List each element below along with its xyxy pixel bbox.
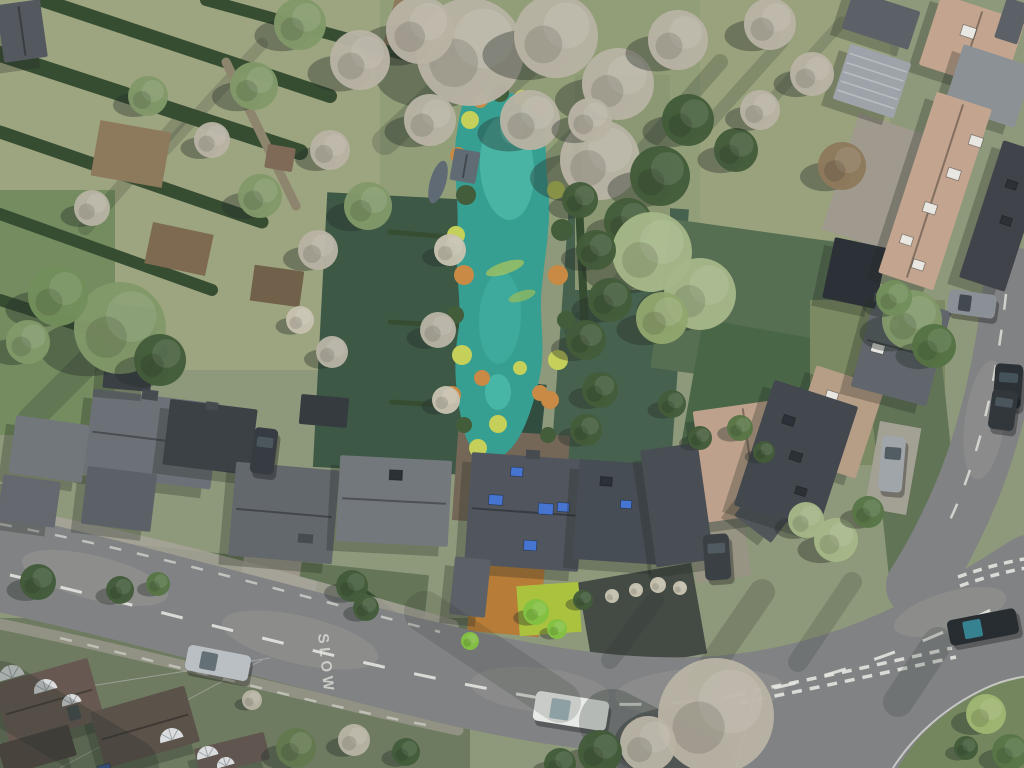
screenshot: SLOW (0, 0, 1024, 768)
vegetation-layer (0, 0, 1024, 768)
atmosphere-overlay (0, 0, 1024, 768)
aerial-photograph: SLOW (0, 0, 1024, 768)
